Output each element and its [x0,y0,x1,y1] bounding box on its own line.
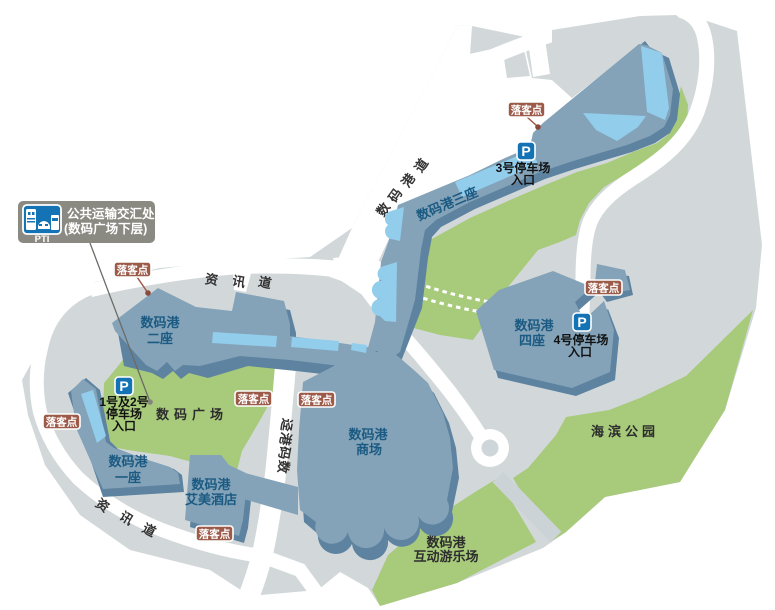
svg-text:数码港: 数码港 [514,318,554,333]
svg-text:数码港: 数码港 [140,315,180,330]
svg-text:落客点: 落客点 [301,394,333,407]
svg-text:P: P [521,143,530,159]
svg-text:PTI: PTI [35,234,50,245]
svg-text:落客点: 落客点 [46,416,78,429]
svg-text:商场: 商场 [356,442,382,457]
svg-text:四座: 四座 [519,333,545,348]
svg-text:资: 资 [204,271,219,288]
svg-text:艾美酒店: 艾美酒店 [185,492,237,507]
svg-text:落客点: 落客点 [238,393,270,406]
svg-text:落客点: 落客点 [588,282,620,295]
svg-text:入口: 入口 [511,173,535,187]
svg-text:(数码广场下层): (数码广场下层) [64,221,147,236]
svg-text:公共运输交汇处: 公共运输交汇处 [67,206,155,221]
svg-text:二座: 二座 [147,331,173,346]
svg-text:落客点: 落客点 [199,528,231,541]
svg-text:P: P [577,314,586,330]
svg-text:码: 码 [276,445,293,460]
svg-text:互动游乐场: 互动游乐场 [413,549,478,564]
svg-text:数码港: 数码港 [426,535,466,550]
svg-text:海滨公园: 海滨公园 [591,424,659,439]
svg-text:入口: 入口 [568,345,592,359]
svg-text:数码港: 数码港 [191,477,231,492]
svg-text:落客点: 落客点 [511,104,543,117]
svg-text:数码港: 数码港 [108,454,148,469]
svg-text:讯: 讯 [231,273,246,290]
svg-text:数码港: 数码港 [348,427,388,442]
svg-text:P: P [119,378,128,394]
svg-text:数码广场: 数码广场 [156,407,228,422]
svg-text:入口: 入口 [112,419,136,433]
svg-text:一座: 一座 [115,470,141,485]
svg-text:落客点: 落客点 [117,264,149,277]
